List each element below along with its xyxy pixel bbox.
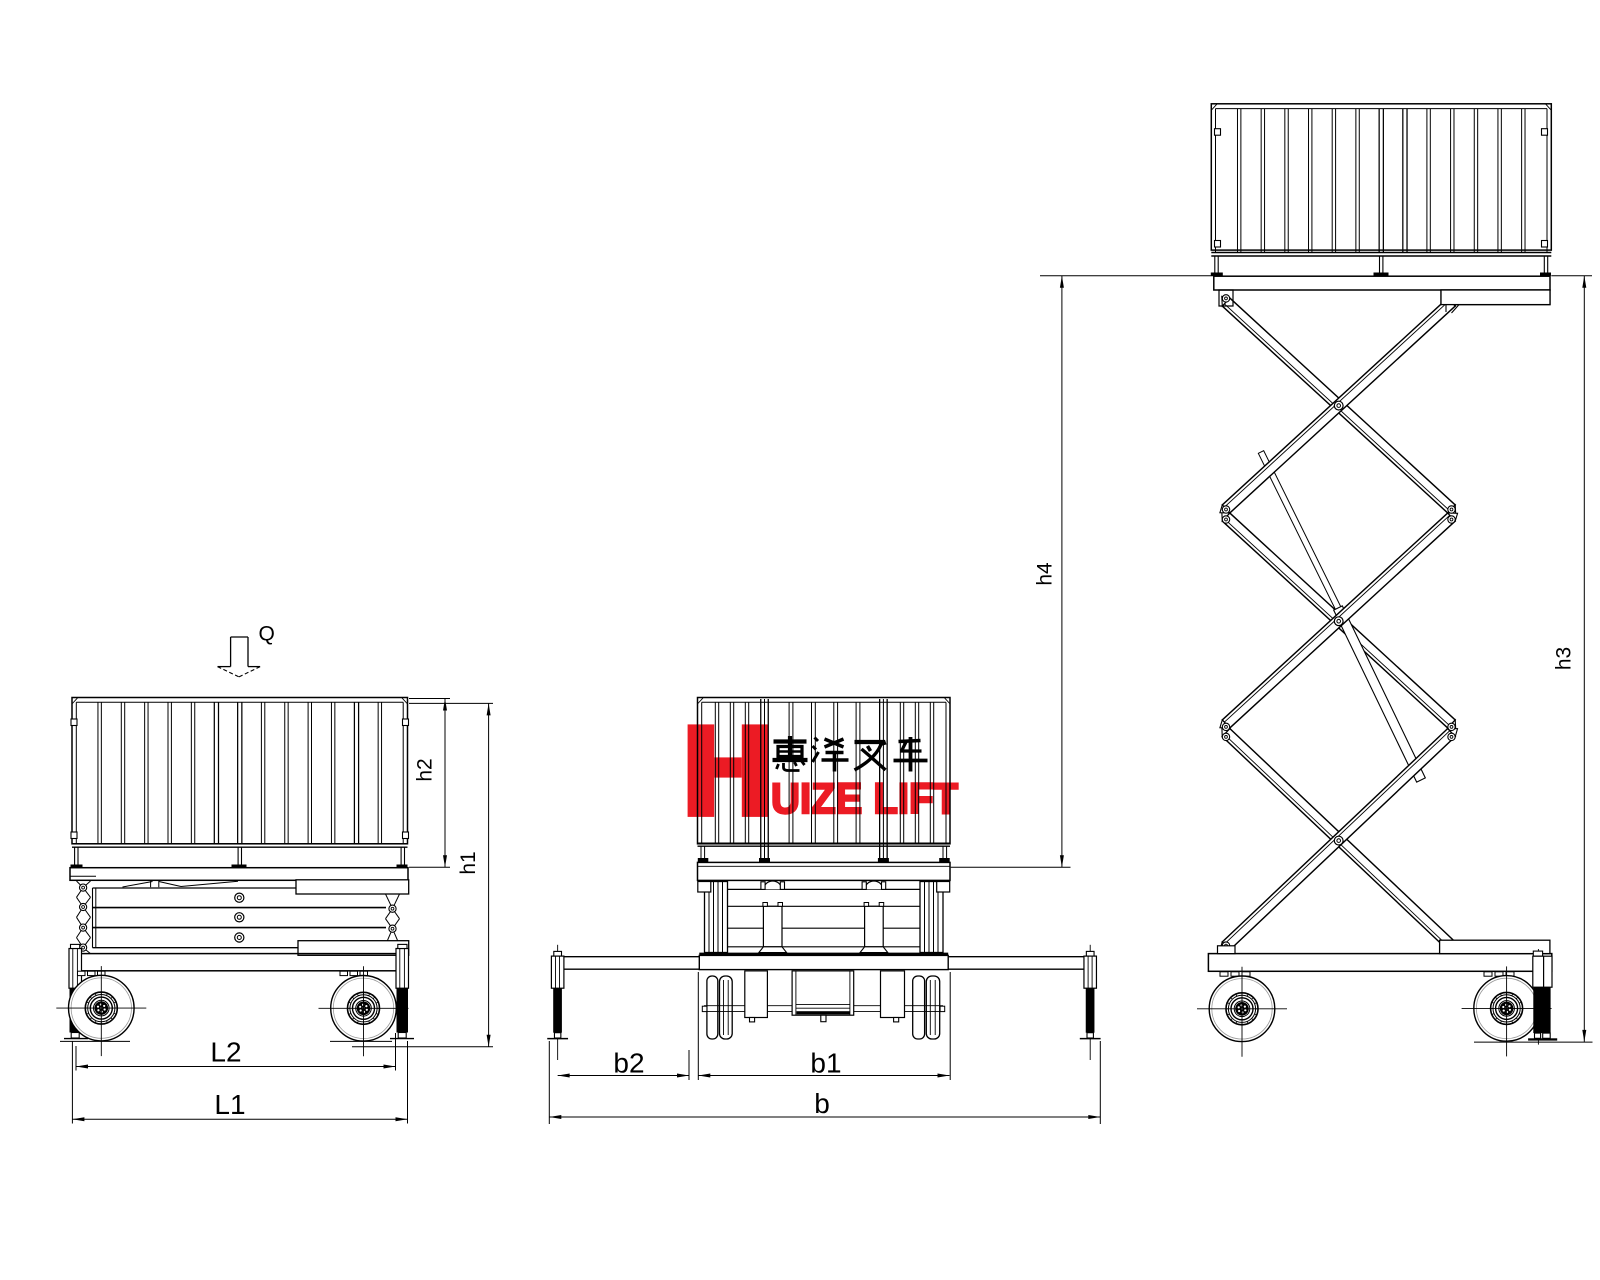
svg-text:L2: L2	[210, 1037, 241, 1068]
svg-text:h2: h2	[414, 758, 437, 781]
svg-text:b1: b1	[810, 1048, 841, 1079]
svg-text:h3: h3	[1553, 647, 1576, 670]
svg-text:b2: b2	[613, 1048, 644, 1079]
svg-text:b: b	[814, 1088, 830, 1119]
svg-text:L1: L1	[214, 1089, 245, 1120]
svg-text:h4: h4	[1034, 562, 1057, 586]
svg-text:Q: Q	[259, 623, 275, 646]
svg-text:h1: h1	[457, 851, 480, 874]
